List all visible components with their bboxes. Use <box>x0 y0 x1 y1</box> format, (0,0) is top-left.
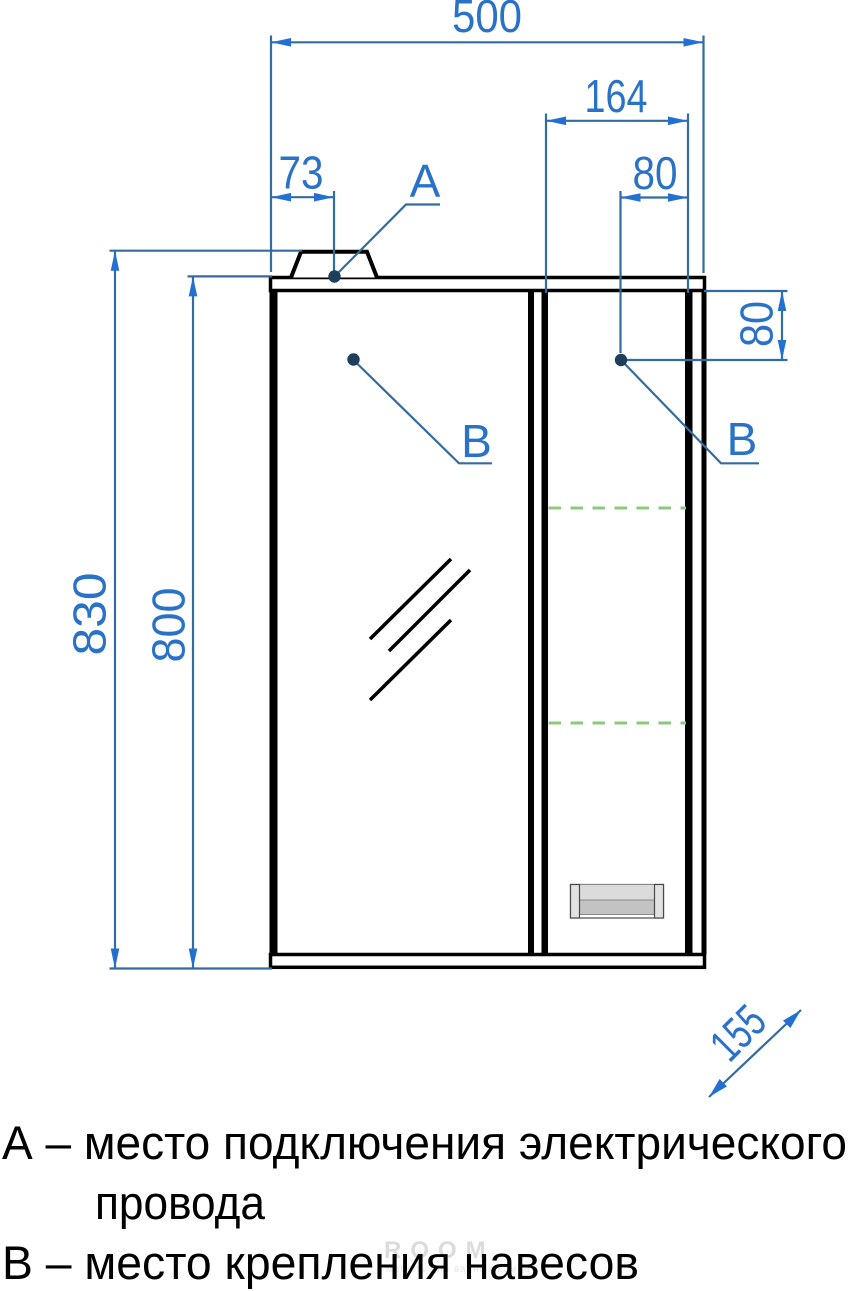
svg-text:В: В <box>461 415 492 467</box>
svg-text:В – место крепления навесов: В – место крепления навесов <box>2 1236 639 1289</box>
svg-text:А – место подключения электрич: А – место подключения электрического <box>2 1116 847 1169</box>
svg-text:В: В <box>727 413 758 465</box>
svg-text:73: 73 <box>279 147 324 199</box>
svg-text:А: А <box>410 155 441 207</box>
svg-text:830: 830 <box>64 573 116 656</box>
svg-text:500: 500 <box>452 0 522 42</box>
svg-text:800: 800 <box>143 588 195 663</box>
svg-text:провода: провода <box>95 1176 266 1229</box>
svg-text:164: 164 <box>585 70 648 122</box>
svg-text:80: 80 <box>633 147 678 199</box>
svg-text:80: 80 <box>731 301 783 347</box>
